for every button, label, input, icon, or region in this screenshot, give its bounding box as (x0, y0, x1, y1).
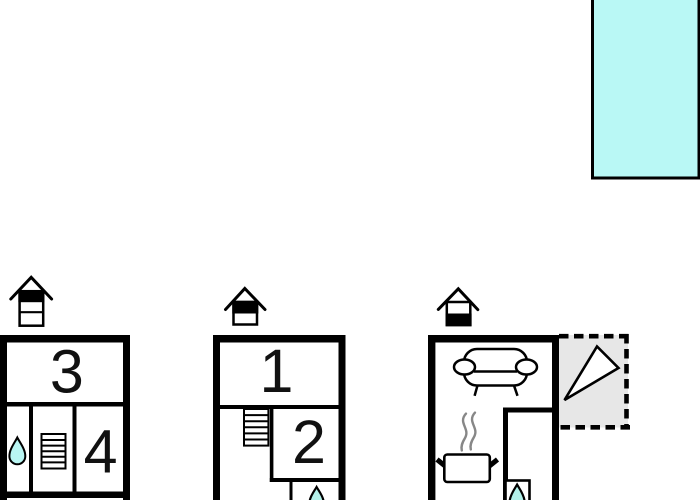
svg-text:4: 4 (84, 418, 118, 486)
svg-text:1: 1 (260, 337, 294, 405)
svg-text:3: 3 (50, 337, 84, 405)
svg-text:2: 2 (292, 408, 326, 476)
